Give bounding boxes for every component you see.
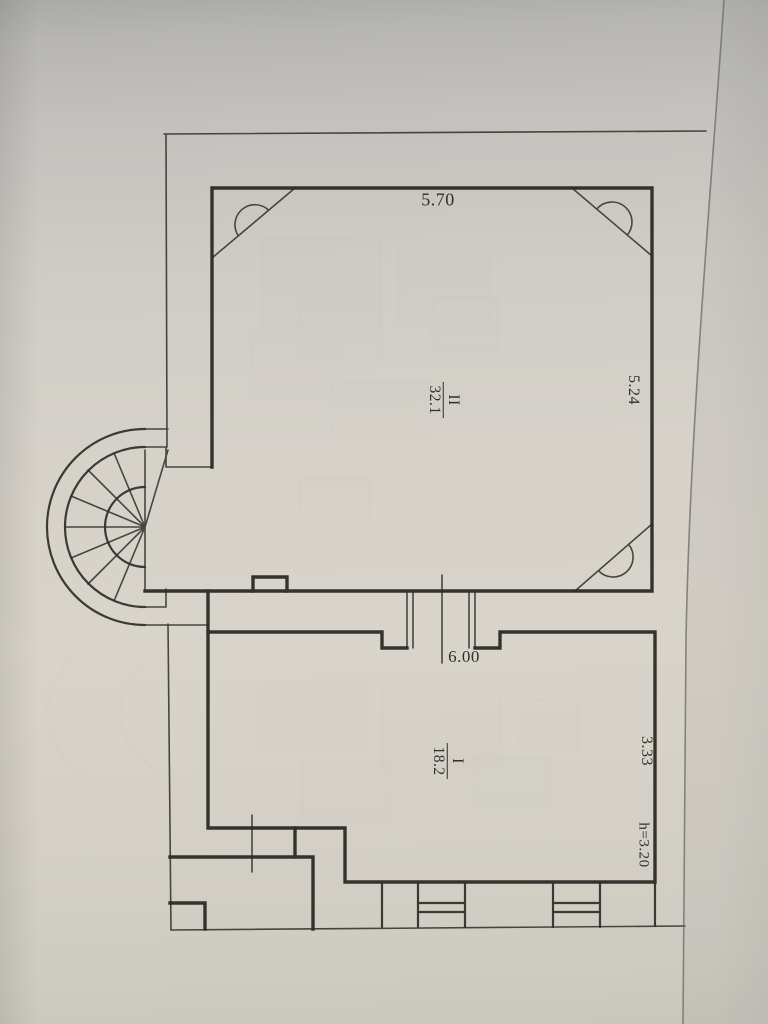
room-i-number: I [449, 758, 465, 764]
window-symbols [418, 903, 600, 912]
paper-fold [683, 0, 768, 1024]
room-i-area: 18.2 [429, 746, 445, 775]
room-i-label: I 18.2 [429, 743, 465, 779]
dimension-right-height-lower: 3.33 [637, 736, 655, 766]
room-ii-label: II 32.1 [425, 382, 461, 418]
floor-plan-scan: 5.70 5.24 6.00 3.33 h=3.20 II 32.1 I 18.… [0, 0, 768, 1024]
room-ii-number: II [445, 394, 461, 405]
bleed-through-ghosting [47, 238, 578, 820]
fold-shade-region [683, 0, 768, 1024]
ceiling-height-note: h=3.20 [635, 822, 652, 867]
floor-plan-drawing [0, 0, 768, 1024]
room-ii-area: 32.1 [425, 385, 441, 414]
dimension-middle-width: 6.00 [448, 647, 480, 667]
fraction-bar [443, 382, 444, 418]
dimension-right-height-upper: 5.24 [624, 375, 642, 405]
fraction-bar [447, 743, 448, 779]
dimension-top-width: 5.70 [421, 190, 455, 211]
